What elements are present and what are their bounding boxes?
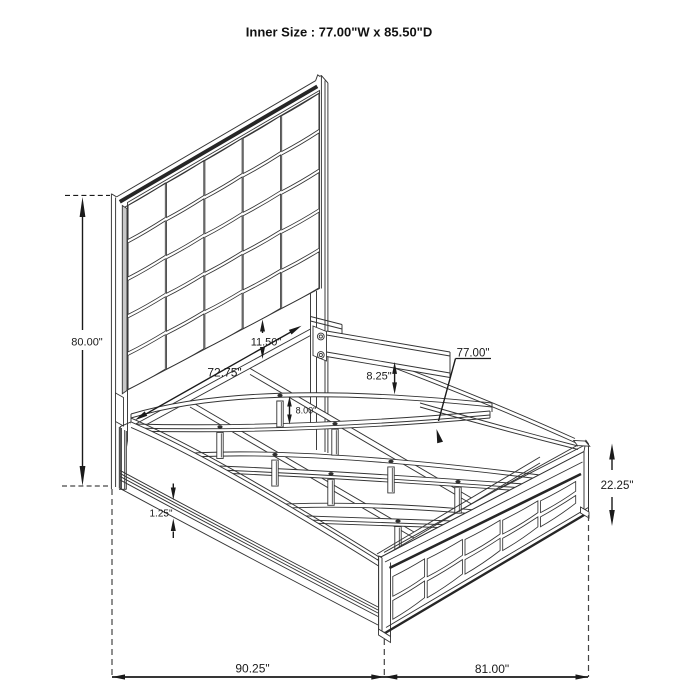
svg-text:22.25": 22.25" [601,480,634,492]
svg-text:81.00": 81.00" [475,662,509,676]
svg-text:77.00": 77.00" [457,348,490,360]
svg-text:72.75": 72.75" [207,365,241,379]
svg-text:8.00": 8.00" [296,406,317,416]
svg-text:Inner Size : 77.00"W x 85.50"D: Inner Size : 77.00"W x 85.50"D [246,25,432,40]
svg-text:8.25": 8.25" [366,371,391,383]
svg-text:1.25": 1.25" [149,509,172,520]
svg-text:80.00": 80.00" [71,336,103,348]
svg-text:90.25": 90.25" [235,661,269,675]
